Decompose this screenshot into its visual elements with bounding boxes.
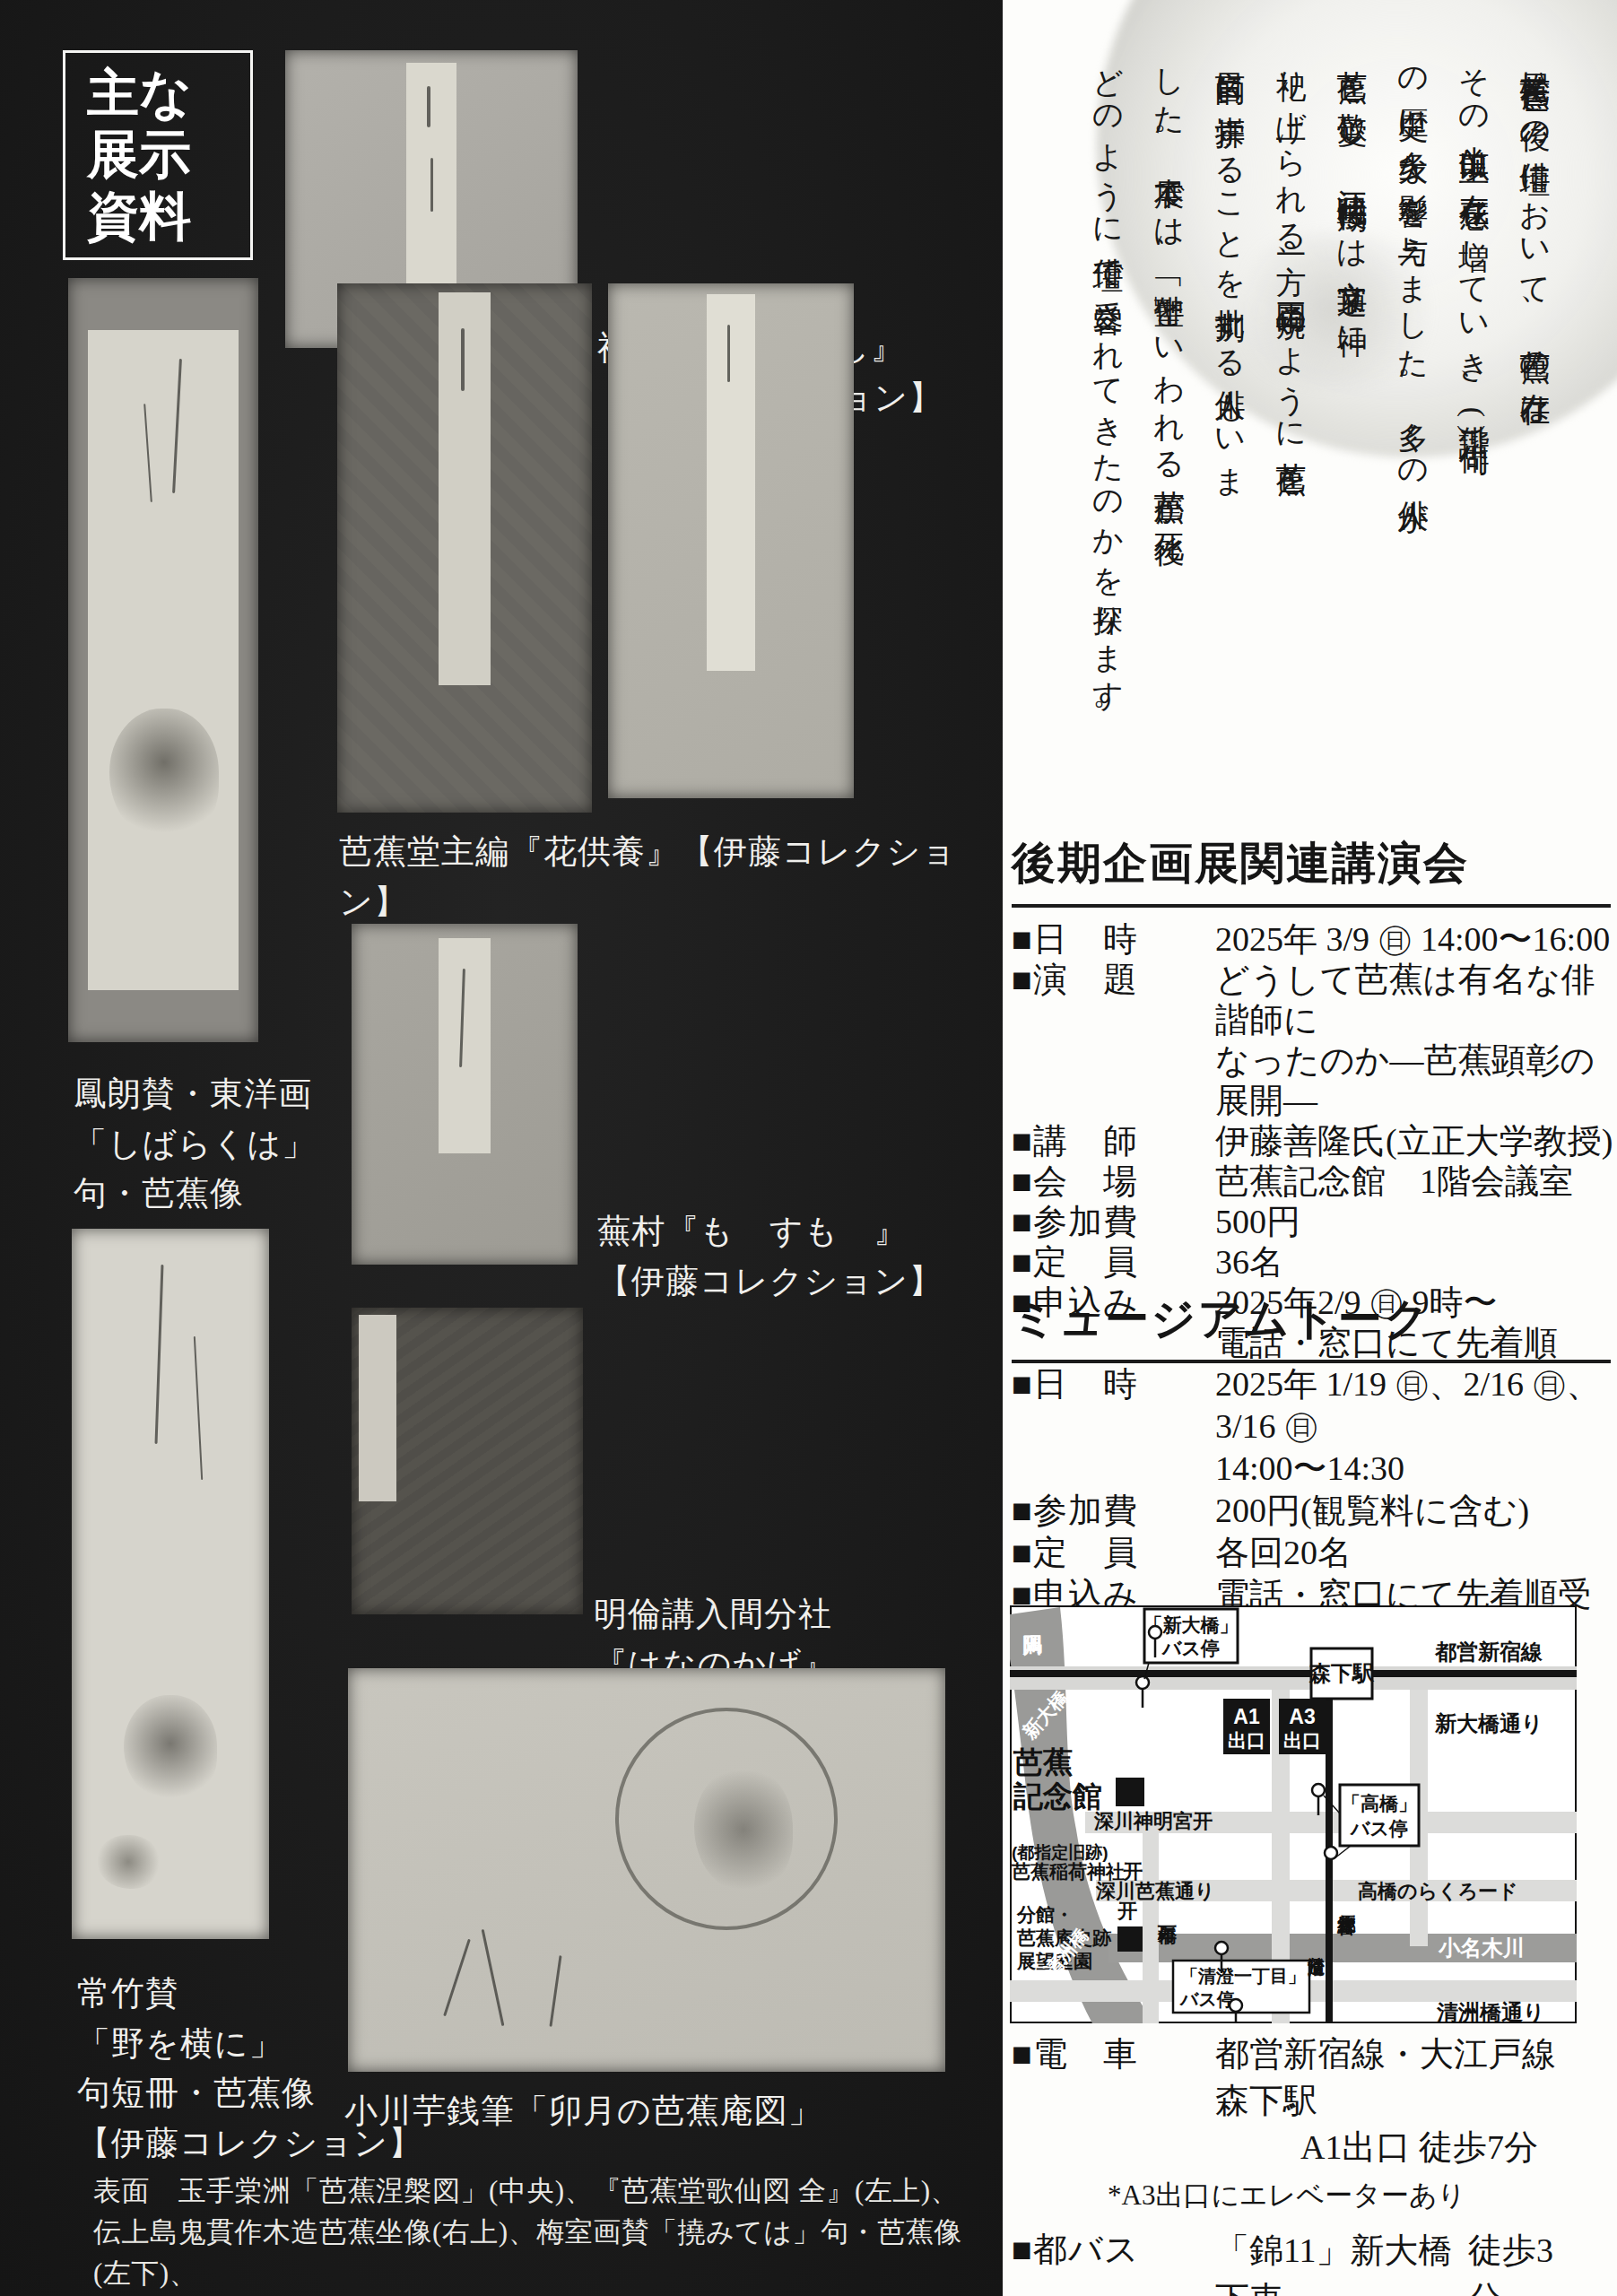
bus-route: 「錦11」新大橋下車 xyxy=(1215,2226,1468,2296)
talk-row-datetime: ■日 時 2025年 1/19 ㊐、2/16 ㊐、3/16 ㊐ 14:00〜14… xyxy=(1012,1363,1614,1490)
exit-a1-l2: 出口 xyxy=(1228,1730,1265,1751)
basho-museum-label-1: 芭蕉 xyxy=(1013,1745,1073,1779)
caption-shibarakuha: 鳳朗賛・東洋画 「しばらくは」 句・芭蕉像 xyxy=(74,1069,316,1219)
transport-info: ■電 車 都営新宿線・大江戸線 森下駅 A1出口 徒歩7分 *A3出口にエレベー… xyxy=(1012,2031,1604,2296)
calligraphy-mark xyxy=(427,86,430,127)
busstop-icon xyxy=(1230,1999,1242,2012)
train-line-2: A1出口 徒歩7分 xyxy=(1215,2124,1538,2170)
grass-stroke xyxy=(443,1939,471,2017)
talk-row-fee: ■参加費 200円(観覧料に含む) xyxy=(1012,1490,1614,1532)
row-value: 各回20名 xyxy=(1215,1532,1614,1574)
access-map-svg: 森下駅 「新大橋」 バス停 「高橋」 バス停 「清澄一丁目」 バス停 A1 出口… xyxy=(1010,1605,1577,2023)
row-value: 500円 xyxy=(1215,1202,1614,1242)
flyer-page: 主な 展示 資料 祇尹『東武墨直し』 【伊藤コレクション】 鳳朗賛・東洋画 「し… xyxy=(0,0,1617,2296)
busstop-icon xyxy=(1312,1784,1325,1796)
row-value: 2025年 3/9 ㊐ 14:00〜16:00 xyxy=(1215,919,1614,960)
access-map: 森下駅 「新大橋」 バス停 「高橋」 バス停 「清澄一丁目」 バス停 A1 出口… xyxy=(1010,1605,1577,2023)
basho-museum-label-2: 記念館 xyxy=(1013,1779,1102,1813)
main-exhibits-title-box: 主な 展示 資料 xyxy=(63,50,253,260)
busstop-icon xyxy=(1136,1676,1149,1689)
exit-a1-l1: A1 xyxy=(1233,1705,1260,1728)
scroll-paper xyxy=(88,330,239,990)
scroll-photo-shibarakuha xyxy=(68,278,258,1042)
inari-label: 芭蕉稲荷神社 xyxy=(1011,1861,1125,1882)
calligraphy-mark xyxy=(194,1336,203,1480)
bunkan-label-1: 分館・ xyxy=(1016,1904,1074,1925)
row-label: ■日 時 xyxy=(1012,1363,1215,1490)
talk-row-capacity: ■定 員 各回20名 xyxy=(1012,1532,1614,1574)
takahashi-busstop-l1: 「高橋」 xyxy=(1342,1793,1417,1813)
train-row: ■電 車 都営新宿線・大江戸線 森下駅 A1出口 徒歩7分 xyxy=(1012,2031,1604,2170)
kyuseki-label: (都指定旧跡) xyxy=(1012,1843,1108,1862)
row-value: 36名 xyxy=(1215,1242,1614,1283)
bunkan-marker xyxy=(1117,1926,1143,1952)
calligraphy-mark xyxy=(430,158,433,212)
row-label: ■会 場 xyxy=(1012,1161,1215,1202)
book-title-strip xyxy=(707,294,755,671)
book-photo-hananokage xyxy=(352,1308,583,1614)
grass-stroke xyxy=(482,1929,505,2026)
lecture-row-capacity: ■定 員 36名 xyxy=(1012,1242,1614,1283)
shinohashi-busstop-l2: バス停 xyxy=(1161,1638,1220,1658)
bus-line-kin11: 「錦11」新大橋下車 徒歩3分 xyxy=(1215,2226,1567,2296)
row-value: 伊藤善隆氏(立正大学教授) xyxy=(1215,1121,1614,1161)
row-value: どうして芭蕉は有名な俳諧師に なったのか―芭蕉顕彰の展開― xyxy=(1215,960,1614,1121)
row-label: ■講 師 xyxy=(1012,1121,1215,1161)
scroll-photo-nowoyokoni xyxy=(72,1229,269,1939)
lecture-row-topic: ■演 題 どうして芭蕉は有名な俳諧師に なったのか―芭蕉顕彰の展開― xyxy=(1012,960,1614,1121)
shinmeigu-label: 深川神明宮开 xyxy=(1093,1810,1213,1832)
bus-walk: 徒歩3分 xyxy=(1468,2226,1567,2296)
row-value: 芭蕉記念館 1階会議室 xyxy=(1215,1161,1614,1202)
calligraphy-mark xyxy=(155,1265,164,1444)
road-shinohashi-dori xyxy=(1010,1666,1577,1690)
rock-sketch xyxy=(97,1835,160,1889)
basho-museum-marker xyxy=(1116,1778,1144,1806)
title-line-1: 主な xyxy=(65,68,250,120)
intro-vertical-text: 松尾芭蕉亡き後の俳壇において、芭蕉の存在は その生前以上に存在感を増していき、俳… xyxy=(1077,47,1565,809)
torii-icon: 开 xyxy=(1122,1860,1143,1883)
calligraphy-mark xyxy=(461,328,465,391)
shinohashi-dori-label: 新大橋通り xyxy=(1434,1711,1543,1735)
book-title-strip xyxy=(439,292,491,685)
row-label: ■参加費 xyxy=(1012,1202,1215,1242)
row-label: ■演 題 xyxy=(1012,960,1215,1121)
exhibit-panel: 主な 展示 資料 祇尹『東武墨直し』 【伊藤コレクション】 鳳朗賛・東洋画 「し… xyxy=(0,0,1003,2296)
elevator-note: *A3出口にエレベーターあり xyxy=(1108,2170,1604,2221)
road-mannenbashi-street xyxy=(1143,1812,1159,2023)
caption-uzuki: 小川芋銭筆「卯月の芭蕉庵図」 xyxy=(344,2086,822,2136)
row-label: ■参加費 xyxy=(1012,1490,1215,1532)
lecture-row-speaker: ■講 師 伊藤善隆氏(立正大学教授) xyxy=(1012,1121,1614,1161)
kiyosubashi-dori-label: 清洲橋通り xyxy=(1436,2000,1545,2023)
book-photo-momosumomo xyxy=(352,924,578,1265)
train-value: 都営新宿線・大江戸線 森下駅 A1出口 徒歩7分 xyxy=(1215,2031,1574,2170)
row-value: 200円(観覧料に含む) xyxy=(1215,1490,1614,1532)
torii-icon: 开 xyxy=(1117,1900,1137,1922)
morishita-station-label: 森下駅 xyxy=(1308,1661,1375,1685)
train-line-1: 都営新宿線・大江戸線 森下駅 xyxy=(1215,2031,1574,2124)
book-photo-hanakuyou-light xyxy=(608,283,854,798)
basho-figure-sketch xyxy=(124,1695,217,1803)
lecture-section-heading: 後期企画展関連講演会 xyxy=(1012,834,1611,908)
title-line-3: 資料 xyxy=(65,191,250,243)
shinjuku-line-label: 都営新宿線 xyxy=(1434,1639,1543,1664)
exit-a3-l2: 出口 xyxy=(1283,1730,1321,1751)
kiyosumi-busstop-l1: 「清澄一丁目」 xyxy=(1180,1966,1306,1986)
basho-figure-sketch xyxy=(109,709,219,843)
book-title-strip xyxy=(359,1315,396,1501)
onagigawa-label: 小名木川 xyxy=(1438,1935,1525,1960)
reverse-side-footnote: 表面 玉手棠洲「芭蕉涅槃図」(中央)、『芭蕉堂歌仙図 全』(左上)、 伝上島鬼貫… xyxy=(93,2170,990,2296)
row-label: ■定 員 xyxy=(1012,1532,1215,1574)
bus-row: ■都バス 「錦11」新大橋下車 徒歩3分 「門33」高橋下車 徒歩5分 「秋26… xyxy=(1012,2226,1604,2296)
caption-hanakuyou: 芭蕉堂主編『花供養』【伊藤コレクション】 xyxy=(339,827,1003,926)
exit-a3-l1: A3 xyxy=(1289,1705,1315,1728)
lecture-row-venue: ■会 場 芭蕉記念館 1階会議室 xyxy=(1012,1161,1614,1202)
rakuro-label: 高橋のらくろード xyxy=(1358,1880,1518,1902)
grass-stroke xyxy=(549,1955,561,2027)
book-photo-hanakuyou-dark xyxy=(337,283,592,813)
row-value: 2025年 1/19 ㊐、2/16 ㊐、3/16 ㊐ 14:00〜14:30 xyxy=(1215,1363,1614,1490)
basho-dori-label: 深川芭蕉通り xyxy=(1095,1880,1215,1902)
figure-sketch xyxy=(694,1767,793,1892)
calligraphy-mark xyxy=(727,325,730,382)
busstop-icon xyxy=(1215,1942,1228,1954)
info-panel: 松尾芭蕉亡き後の俳壇において、芭蕉の存在は その生前以上に存在感を増していき、俳… xyxy=(1003,0,1617,2296)
takahashi-busstop-l2: バス停 xyxy=(1350,1818,1408,1839)
lecture-row-fee: ■参加費 500円 xyxy=(1012,1202,1614,1242)
train-label: ■電 車 xyxy=(1012,2031,1215,2170)
bus-label: ■都バス xyxy=(1012,2226,1215,2296)
drawing-photo-uzuki-bashoan xyxy=(348,1668,945,2072)
bus-lines: 「錦11」新大橋下車 徒歩3分 「門33」高橋下車 徒歩5分 「秋26」清澄一丁… xyxy=(1215,2226,1567,2296)
toei-shinjuku-line-rail xyxy=(1010,1670,1577,1677)
row-label: ■日 時 xyxy=(1012,919,1215,960)
title-line-2: 展示 xyxy=(65,129,250,181)
kiyosumi-busstop-l2: バス停 xyxy=(1179,1989,1235,2009)
row-label: ■定 員 xyxy=(1012,1242,1215,1283)
museum-talk-section-heading: ミュージアムトーク xyxy=(1012,1290,1611,1363)
lecture-row-datetime: ■日 時 2025年 3/9 ㊐ 14:00〜16:00 xyxy=(1012,919,1614,960)
busstop-icon xyxy=(1149,1626,1161,1639)
caption-momosumomo: 蕪村『もゝすもゝ』 【伊藤コレクション】 xyxy=(597,1206,943,1306)
